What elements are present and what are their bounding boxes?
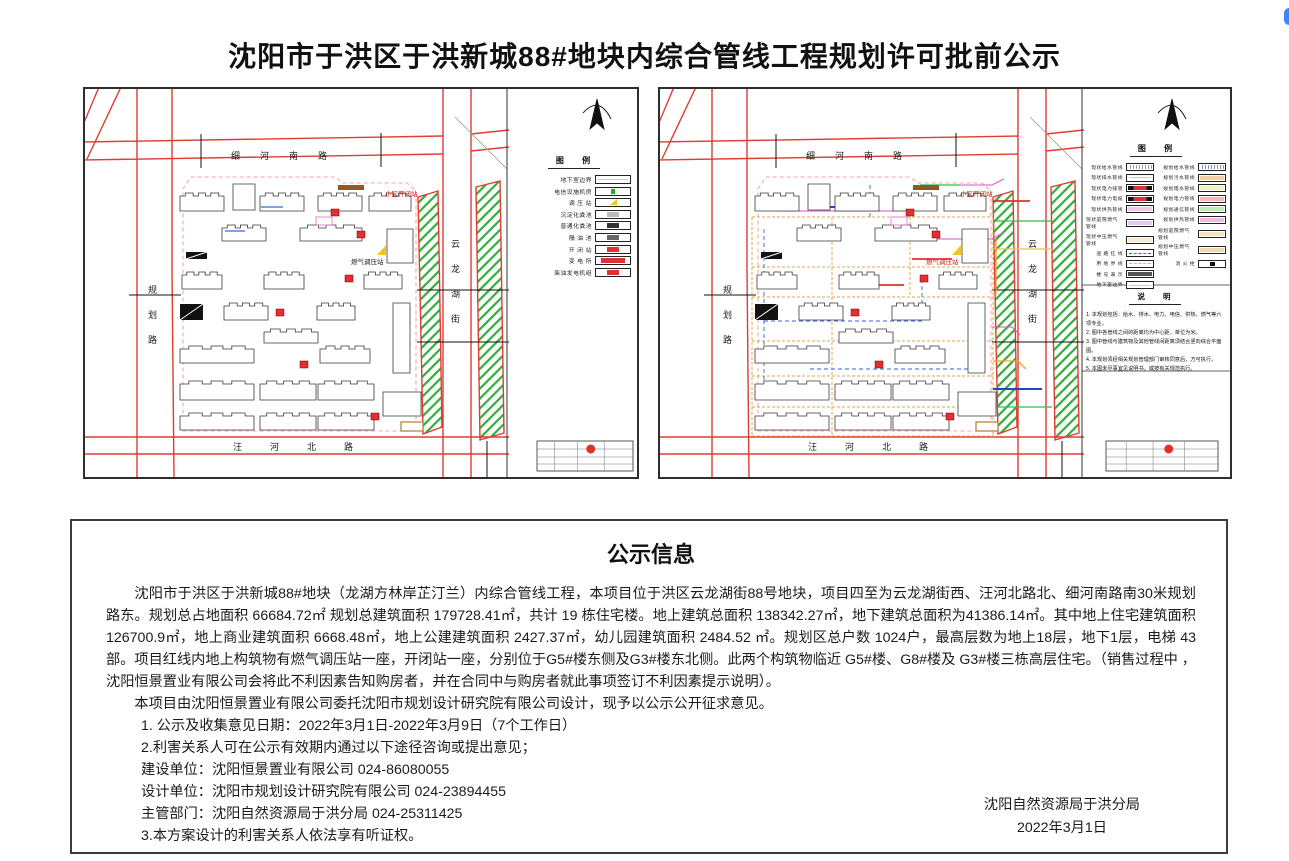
legend-item-label: 现状排水管线: [1091, 174, 1123, 181]
info-paragraph: 本项目由沈阳恒景置业有限公司委托沈阳市规划设计研究院有限公司设计，现予以公示公开…: [106, 693, 1196, 715]
info-title: 公示信息: [106, 537, 1196, 569]
legend-item-label: 现状供热管线: [1091, 206, 1123, 213]
legend-title: 图 例: [1086, 143, 1226, 157]
legend-item: 现状给水管线: [1086, 163, 1154, 171]
legend-item: 隔 油 池: [517, 233, 631, 242]
left-map-geometry: [85, 89, 633, 477]
legend-item: 沉淀化粪池: [517, 210, 631, 219]
legend-item: 现状供热管线: [1086, 205, 1154, 213]
legend-item-label: 变 电 所: [569, 256, 592, 265]
legend-item: 开 闭 站: [517, 245, 631, 254]
legend-item: 规划中压燃气管线: [1158, 243, 1226, 257]
info-line: 1. 公示及收集意见日期：2022年3月1日-2022年3月9日（7个工作日）: [106, 715, 1196, 737]
right-pipeline-plan-panel: 细河南路 汪河北路 规划路 云龙湖街 小区开闭站 燃气调压站 图 例 现状给水管…: [658, 87, 1232, 479]
legend-item-label: 规划雨水管线: [1163, 185, 1195, 192]
legend-item-label: 地下室边界: [1097, 281, 1124, 288]
legend-item-label: 沉淀化粪池: [561, 210, 593, 219]
legend-item-label: 消 火 栓: [1175, 260, 1195, 267]
legend-item: 地下室边界: [1086, 281, 1154, 289]
legend-item: 变 电 所: [517, 256, 631, 265]
legend-item: 用 地 界 线: [1086, 260, 1154, 268]
legend-item: 地下室边界: [517, 175, 631, 184]
road-name-planned-road: 规划路: [721, 285, 734, 360]
signature-date: 2022年3月1日: [984, 817, 1140, 840]
legend-item-label: 用 地 界 线: [1096, 260, 1123, 267]
legend-item-label: 开 闭 站: [569, 245, 592, 254]
road-name-wanghe-north: 汪河北路: [808, 440, 956, 453]
legend-item-label: 地下室边界: [561, 175, 593, 184]
signature-block: 沈阳自然资源局于洪分局 2022年3月1日: [984, 794, 1140, 840]
left-map-legend-items: 地下室边界电信设施机房调 压 站沉淀化粪池普通化粪池隔 油 池开 闭 站变 电 …: [517, 175, 631, 277]
road-name-yunlonghu-street: 云龙湖街: [1026, 239, 1039, 339]
gas-regulator-station-label: 燃气调压站: [351, 256, 384, 266]
info-line: 建设单位：沈阳恒景置业有限公司 024-86080055: [106, 759, 1196, 781]
road-name-planned-road: 规划路: [146, 285, 159, 360]
district-switch-station-label: 小区开闭站: [960, 188, 993, 198]
legend-item: 规划电力管线: [1158, 195, 1226, 203]
legend-item-label: 现状电力排管: [1091, 185, 1123, 192]
left-map-legend: 图 例 地下室边界电信设施机房调 压 站沉淀化粪池普通化粪池隔 油 池开 闭 站…: [517, 155, 631, 279]
legend-item: 现状庭院燃气管线: [1086, 216, 1154, 230]
legend-item-label: 规划通信管线: [1163, 206, 1195, 213]
legend-item: 楼 号 表 示: [1086, 270, 1154, 278]
legend-item-label: 道 路 红 线: [1096, 250, 1123, 257]
page-title: 沈阳市于洪区于洪新城88#地块内综合管线工程规划许可批前公示: [0, 35, 1289, 75]
legend-item: 柴油发电机组: [517, 268, 631, 277]
legend-item: 现状排水管线: [1086, 174, 1154, 182]
info-line: 2.利害关系人可在公示有效期内通过以下途径咨询或提出意见；: [106, 737, 1196, 759]
right-map-notes: 说 明 1. 本规划包括：给水、排水、电力、电信、供热、燃气等六项专业。2. 图…: [1086, 291, 1224, 374]
legend-item-label: 规划中压燃气管线: [1158, 243, 1195, 257]
gas-regulator-station-label: 燃气调压站: [926, 256, 959, 266]
road-name-yunlonghu-street: 云龙湖街: [449, 239, 462, 339]
left-site-plan-drawing: [85, 89, 637, 477]
note-line: 5. 本图未尽事宜见说明书，或按有关规范执行。: [1086, 365, 1224, 374]
legend-item-label: 现状给水管线: [1091, 164, 1123, 171]
legend-item-label: 调 压 站: [569, 198, 592, 207]
legend-item-label: 规划污水管线: [1163, 174, 1195, 181]
legend-item-label: 规划电力管线: [1163, 195, 1195, 202]
legend-item-label: 普通化粪池: [561, 221, 593, 230]
legend-item-label: 规划庭院燃气管线: [1158, 227, 1195, 241]
legend-item: 规划污水管线: [1158, 174, 1226, 182]
road-name-xihe-south: 细河南路: [231, 149, 347, 162]
legend-item-label: 现状中压燃气管线: [1086, 233, 1123, 247]
info-paragraph: 沈阳市于洪区于洪新城88#地块（龙湖方林岸芷汀兰）内综合管线工程，本项目位于洪区…: [106, 583, 1196, 693]
road-name-wanghe-north: 汪河北路: [233, 440, 381, 453]
legend-item-label: 电信设施机房: [554, 187, 592, 196]
legend-item-label: 规划供热管线: [1163, 216, 1195, 223]
legend-item-label: 柴油发电机组: [554, 268, 592, 277]
legend-item: 道 路 红 线: [1086, 249, 1154, 257]
note-line: 3. 图中管线与建筑物及其他管线间距离须结合竖向综合平面图。: [1086, 338, 1224, 356]
note-line: 1. 本规划包括：给水、排水、电力、电信、供热、燃气等六项专业。: [1086, 311, 1224, 329]
legend-item-label: 现状庭院燃气管线: [1086, 216, 1123, 230]
legend-item: 规划通信管线: [1158, 205, 1226, 213]
legend-title: 图 例: [517, 155, 631, 169]
right-map-notes-list: 1. 本规划包括：给水、排水、电力、电信、供热、燃气等六项专业。2. 图中各管线…: [1086, 311, 1224, 374]
legend-item-label: 规划给水管线: [1163, 164, 1195, 171]
signature-org: 沈阳自然资源局于洪分局: [984, 794, 1140, 817]
notes-title: 说 明: [1086, 291, 1224, 305]
legend-item: 规划雨水管线: [1158, 184, 1226, 192]
right-map-legend-col2: 规划给水管线规划污水管线规划雨水管线规划电力管线规划通信管线规划供热管线规划庭院…: [1158, 163, 1226, 292]
legend-item: 电信设施机房: [517, 187, 631, 196]
legend-item: 现状电力电缆: [1086, 195, 1154, 203]
info-paragraphs: 沈阳市于洪区于洪新城88#地块（龙湖方林岸芷汀兰）内综合管线工程，本项目位于洪区…: [106, 583, 1196, 715]
legend-item: 调 压 站: [517, 198, 631, 207]
note-line: 4. 本规划须经相关规划管理部门审核同意后，方可执行。: [1086, 356, 1224, 365]
district-switch-station-label: 小区开闭站: [385, 188, 418, 198]
legend-item: 现状中压燃气管线: [1086, 233, 1154, 247]
legend-item: 规划给水管线: [1158, 163, 1226, 171]
legend-item: 现状电力排管: [1086, 184, 1154, 192]
right-map-legend-col1: 现状给水管线现状排水管线现状电力排管现状电力电缆现状供热管线现状庭院燃气管线现状…: [1086, 163, 1154, 292]
legend-item: 消 火 栓: [1158, 260, 1226, 268]
edge-widget-fragment[interactable]: [1284, 8, 1289, 25]
legend-item-label: 楼 号 表 示: [1096, 271, 1123, 278]
note-line: 2. 图中各管线之间的距离均为中心距，单位为米。: [1086, 329, 1224, 338]
legend-item: 普通化粪池: [517, 221, 631, 230]
legend-item-label: 现状电力电缆: [1091, 195, 1123, 202]
road-name-xihe-south: 细河南路: [806, 149, 922, 162]
legend-item: 规划供热管线: [1158, 216, 1226, 224]
legend-item-label: 隔 油 池: [569, 233, 592, 242]
left-site-plan-panel: 细河南路 汪河北路 规划路 云龙湖街 小区开闭站 燃气调压站 图 例 地下室边界…: [83, 87, 639, 479]
legend-item: 规划庭院燃气管线: [1158, 227, 1226, 241]
right-map-legend: 图 例 现状给水管线现状排水管线现状电力排管现状电力电缆现状供热管线现状庭院燃气…: [1086, 143, 1226, 292]
public-notice-info-box: 公示信息 沈阳市于洪区于洪新城88#地块（龙湖方林岸芷汀兰）内综合管线工程，本项…: [70, 519, 1228, 854]
